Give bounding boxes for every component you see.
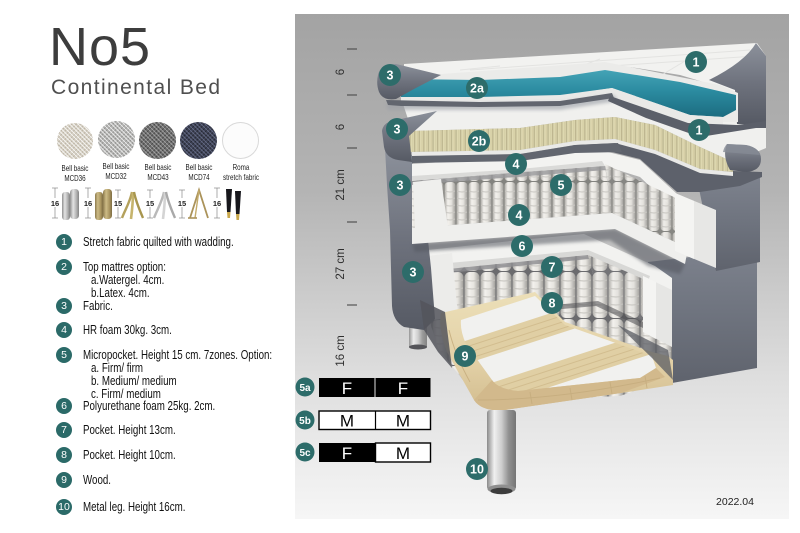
svg-text:3: 3 bbox=[387, 69, 394, 83]
svg-text:F: F bbox=[342, 444, 352, 463]
svg-text:F: F bbox=[342, 379, 352, 398]
svg-text:1: 1 bbox=[693, 56, 700, 70]
svg-text:27 cm: 27 cm bbox=[335, 248, 347, 279]
svg-text:3: 3 bbox=[410, 266, 417, 280]
svg-text:6: 6 bbox=[335, 69, 347, 75]
svg-text:16 cm: 16 cm bbox=[335, 335, 347, 366]
svg-text:2b: 2b bbox=[472, 135, 487, 149]
svg-text:3: 3 bbox=[394, 123, 401, 137]
svg-text:2a: 2a bbox=[470, 82, 485, 96]
svg-text:1: 1 bbox=[696, 124, 703, 138]
svg-text:5a: 5a bbox=[299, 383, 311, 394]
svg-text:M: M bbox=[340, 412, 354, 431]
svg-text:5b: 5b bbox=[299, 416, 311, 427]
svg-text:8: 8 bbox=[549, 297, 556, 311]
svg-text:4: 4 bbox=[516, 209, 523, 223]
svg-text:3: 3 bbox=[397, 179, 404, 193]
svg-text:4: 4 bbox=[513, 158, 520, 172]
svg-text:7: 7 bbox=[549, 261, 556, 275]
svg-text:5: 5 bbox=[558, 179, 565, 193]
svg-text:5c: 5c bbox=[299, 448, 311, 459]
svg-text:6: 6 bbox=[519, 240, 526, 254]
svg-text:F: F bbox=[398, 379, 408, 398]
svg-text:2022.04: 2022.04 bbox=[716, 496, 754, 508]
svg-text:9: 9 bbox=[462, 350, 469, 364]
svg-text:10: 10 bbox=[470, 463, 484, 477]
svg-text:6: 6 bbox=[335, 124, 347, 130]
svg-text:M: M bbox=[396, 412, 410, 431]
svg-text:M: M bbox=[396, 444, 410, 463]
svg-text:21 cm: 21 cm bbox=[335, 169, 347, 200]
